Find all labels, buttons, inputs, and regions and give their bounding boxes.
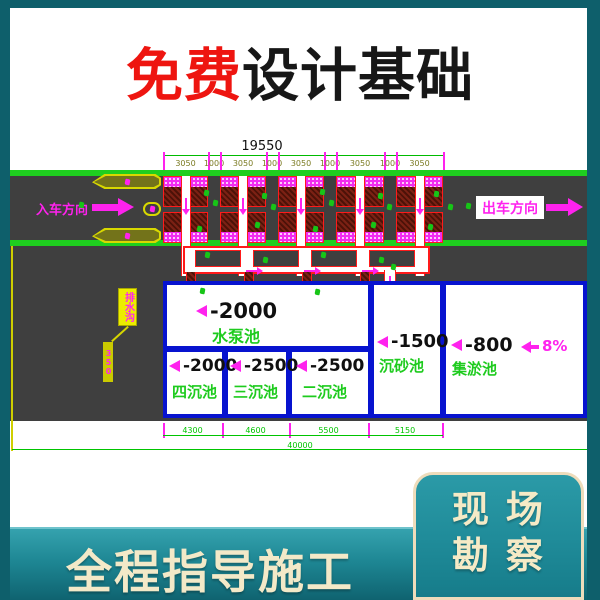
depth-marker-icon bbox=[196, 305, 207, 317]
channel-cell bbox=[253, 250, 299, 267]
footer-banner-text: 全程指导施工 bbox=[10, 536, 410, 600]
channel-cell bbox=[195, 250, 241, 267]
slope-arrow-icon bbox=[521, 341, 531, 353]
drain-arrow-icon bbox=[185, 198, 187, 210]
page-title: 免费设计基础 bbox=[0, 48, 600, 105]
entry-arrow-icon bbox=[92, 204, 118, 211]
callout-note: 350 bbox=[103, 342, 113, 382]
top-dim-value: 1000 bbox=[199, 159, 229, 168]
frame-right bbox=[587, 0, 600, 600]
silt-pool-name: 集淤池 bbox=[452, 358, 497, 379]
site-edge-line bbox=[11, 246, 13, 451]
top-dim-value: 1000 bbox=[315, 159, 345, 168]
bottom-dim-value: 4300 bbox=[173, 426, 213, 435]
top-dim-value: 3050 bbox=[345, 159, 375, 168]
exit-arrow-icon bbox=[546, 204, 568, 211]
depth-marker-icon bbox=[296, 360, 307, 372]
top-dim-value: 3050 bbox=[171, 159, 201, 168]
exit-direction-label: 出车方向 bbox=[482, 198, 538, 218]
top-dim-value: 3050 bbox=[405, 159, 435, 168]
callout-tag: 排水沟 bbox=[118, 288, 137, 326]
card-line-2: 勘 察 bbox=[452, 533, 545, 579]
card-line-1: 现 场 bbox=[452, 487, 545, 533]
slope-label: 8% bbox=[542, 337, 567, 355]
third-pool-name: 三沉池 bbox=[233, 381, 278, 402]
exit-arrow-head-icon bbox=[568, 198, 583, 216]
pool-wall bbox=[167, 346, 370, 352]
bottom-dim-value: 5150 bbox=[385, 426, 425, 435]
fourth-pool-depth: -2000 bbox=[169, 356, 237, 376]
drain-arrow-icon bbox=[242, 198, 244, 210]
top-dim-value: 1000 bbox=[375, 159, 405, 168]
drain-arrow-icon bbox=[300, 198, 302, 210]
channel-cell bbox=[311, 250, 357, 267]
drain-arrow-icon bbox=[419, 198, 421, 210]
depth-marker-icon bbox=[377, 336, 388, 348]
top-dim-total: 19550 bbox=[180, 139, 344, 154]
footer-card: 现 场 勘 察 bbox=[413, 472, 584, 600]
frame-left bbox=[0, 0, 10, 600]
pump-pool-name: 水泵池 bbox=[212, 323, 260, 347]
third-pool-depth: -2500 bbox=[230, 356, 298, 376]
depth-marker-icon bbox=[169, 360, 180, 372]
pump-pool-depth: -2000 bbox=[196, 299, 277, 323]
overall-dim-total: 40000 bbox=[265, 441, 335, 450]
pool-wall bbox=[368, 285, 374, 414]
bottom-dim-line bbox=[163, 435, 443, 436]
exit-label-box: 出车方向 bbox=[476, 196, 544, 219]
second-pool-name: 二沉池 bbox=[302, 381, 347, 402]
silt-pool-depth: -800 bbox=[451, 334, 513, 356]
fourth-pool-name: 四沉池 bbox=[172, 381, 217, 402]
depth-marker-icon bbox=[451, 339, 462, 351]
drain-arrow-icon bbox=[359, 198, 361, 210]
bottom-dim-value: 4600 bbox=[236, 426, 276, 435]
sand-pool-depth: -1500 bbox=[377, 331, 449, 352]
top-dim-value: 3050 bbox=[286, 159, 316, 168]
title-highlight: 免费 bbox=[126, 43, 242, 109]
depth-marker-icon bbox=[230, 360, 241, 372]
poster: 免费设计基础 19550 305010003050100030501000305… bbox=[0, 0, 600, 600]
top-dim-value: 1000 bbox=[257, 159, 287, 168]
slope-arrow-bar-icon bbox=[531, 345, 539, 349]
top-dim-value: 3050 bbox=[228, 159, 258, 168]
sand-pool-name: 沉砂池 bbox=[379, 355, 424, 376]
bottom-dim-value: 5500 bbox=[309, 426, 349, 435]
frame-top bbox=[0, 0, 600, 8]
entry-arrow-head-icon bbox=[118, 198, 134, 216]
title-rest: 设计基础 bbox=[242, 43, 474, 109]
second-pool-depth: -2500 bbox=[296, 356, 364, 376]
